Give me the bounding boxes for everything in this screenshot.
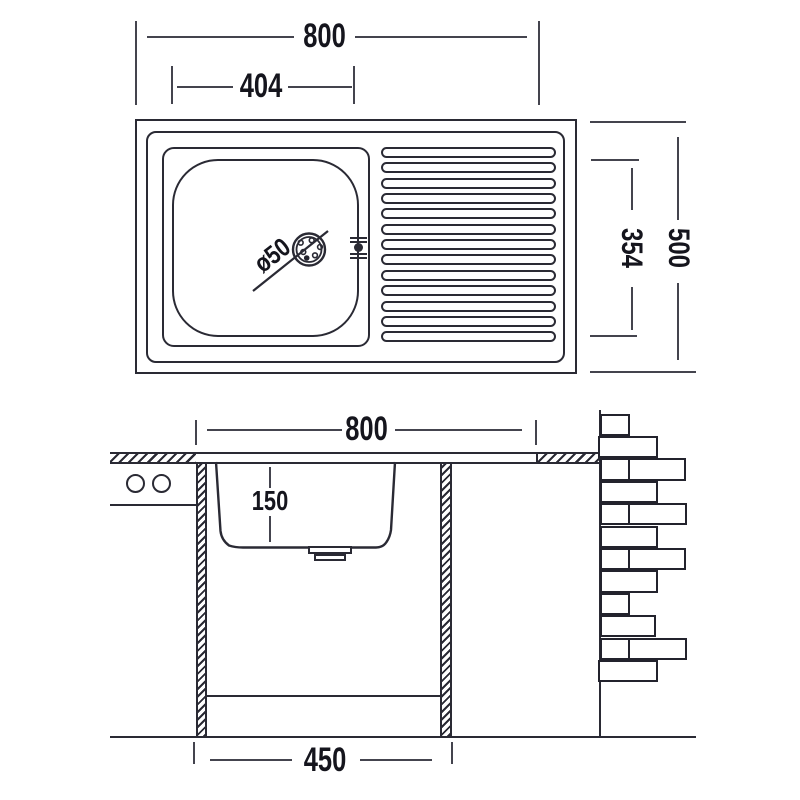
drainboard-ridge [381, 270, 556, 281]
dim-800b-line-left [207, 429, 342, 431]
dim-404-line-right [288, 86, 352, 88]
dim-500-ext-bottom [590, 371, 696, 373]
sink-bowl-section [205, 458, 405, 563]
dim-label-bowl-width: 404 [240, 71, 282, 101]
floor-line [110, 736, 696, 738]
dim-label-overall-width-section: 800 [344, 414, 390, 444]
dim-500-line-bottom [677, 283, 679, 360]
dim-800-line-right [355, 36, 527, 38]
drainboard-ridge [381, 285, 556, 296]
dim-800-ext-left [135, 21, 137, 105]
brick [600, 638, 630, 660]
dim-354-line-top [631, 168, 633, 210]
brick [600, 570, 658, 592]
drainboard-ridge [381, 208, 556, 219]
dim-354-ext-top [591, 159, 639, 161]
dim-404-ext-left [171, 66, 173, 104]
dim-450-line-left [210, 759, 292, 761]
dim-450-tick-left [193, 742, 195, 764]
dim-150-line-bottom [269, 516, 271, 542]
dim-450-tick-right [451, 742, 453, 764]
brick [628, 548, 686, 570]
dim-label-bowl-depth: 354 [616, 224, 646, 272]
dim-label-bowl-height: 150 [247, 488, 294, 514]
countertop-hatch-left [110, 454, 196, 462]
drain-flange-bottom [314, 554, 346, 561]
dim-500-ext-top [590, 121, 686, 123]
dim-450-line-right [360, 759, 432, 761]
left-unit-line [110, 504, 196, 506]
dim-800b-line-right [395, 429, 522, 431]
drainboard-ridge [381, 254, 556, 265]
brick [598, 436, 658, 458]
dim-label-overall-width-top: 800 [302, 21, 348, 51]
brick [600, 458, 630, 480]
drainboard-ridge [381, 147, 556, 158]
brick [600, 615, 656, 637]
knob-circle-left [126, 474, 145, 493]
drainboard-ridge [381, 224, 556, 235]
brick [600, 548, 630, 570]
brick [600, 526, 658, 548]
dim-800-ext-right [538, 21, 540, 105]
dim-354-line-bottom [631, 287, 633, 330]
dim-404-line-left [177, 86, 233, 88]
drainboard-ridge [381, 301, 556, 312]
dim-500-line-top [677, 137, 679, 220]
brick [600, 481, 658, 503]
cabinet-wall-right [440, 461, 452, 737]
brick [628, 638, 687, 660]
drainboard-ridge [381, 193, 556, 204]
brick [600, 503, 630, 525]
knob-circle-right [152, 474, 171, 493]
dim-label-cabinet-width: 450 [303, 745, 348, 775]
brick [628, 503, 687, 525]
drainboard-ridge [381, 178, 556, 189]
brick [600, 593, 630, 615]
dim-800b-tick-right [535, 420, 537, 445]
brick [598, 660, 658, 682]
cabinet-shelf-line [206, 695, 441, 697]
drainboard-ridge [381, 162, 556, 173]
countertop-hatch-right [536, 454, 599, 462]
drainboard-ridge [381, 316, 556, 327]
dim-404-ext-right [353, 66, 355, 104]
drainboard-ridge [381, 239, 556, 250]
dim-354-ext-bottom [590, 335, 637, 337]
dim-800-line-left [147, 36, 294, 38]
dim-label-overall-depth: 500 [663, 224, 693, 272]
brick [628, 458, 686, 480]
drainboard-ridge [381, 331, 556, 342]
brick [600, 414, 630, 436]
sink-dimension-drawing: 800 404 ø50 [0, 0, 800, 800]
dim-800b-tick-left [195, 420, 197, 445]
